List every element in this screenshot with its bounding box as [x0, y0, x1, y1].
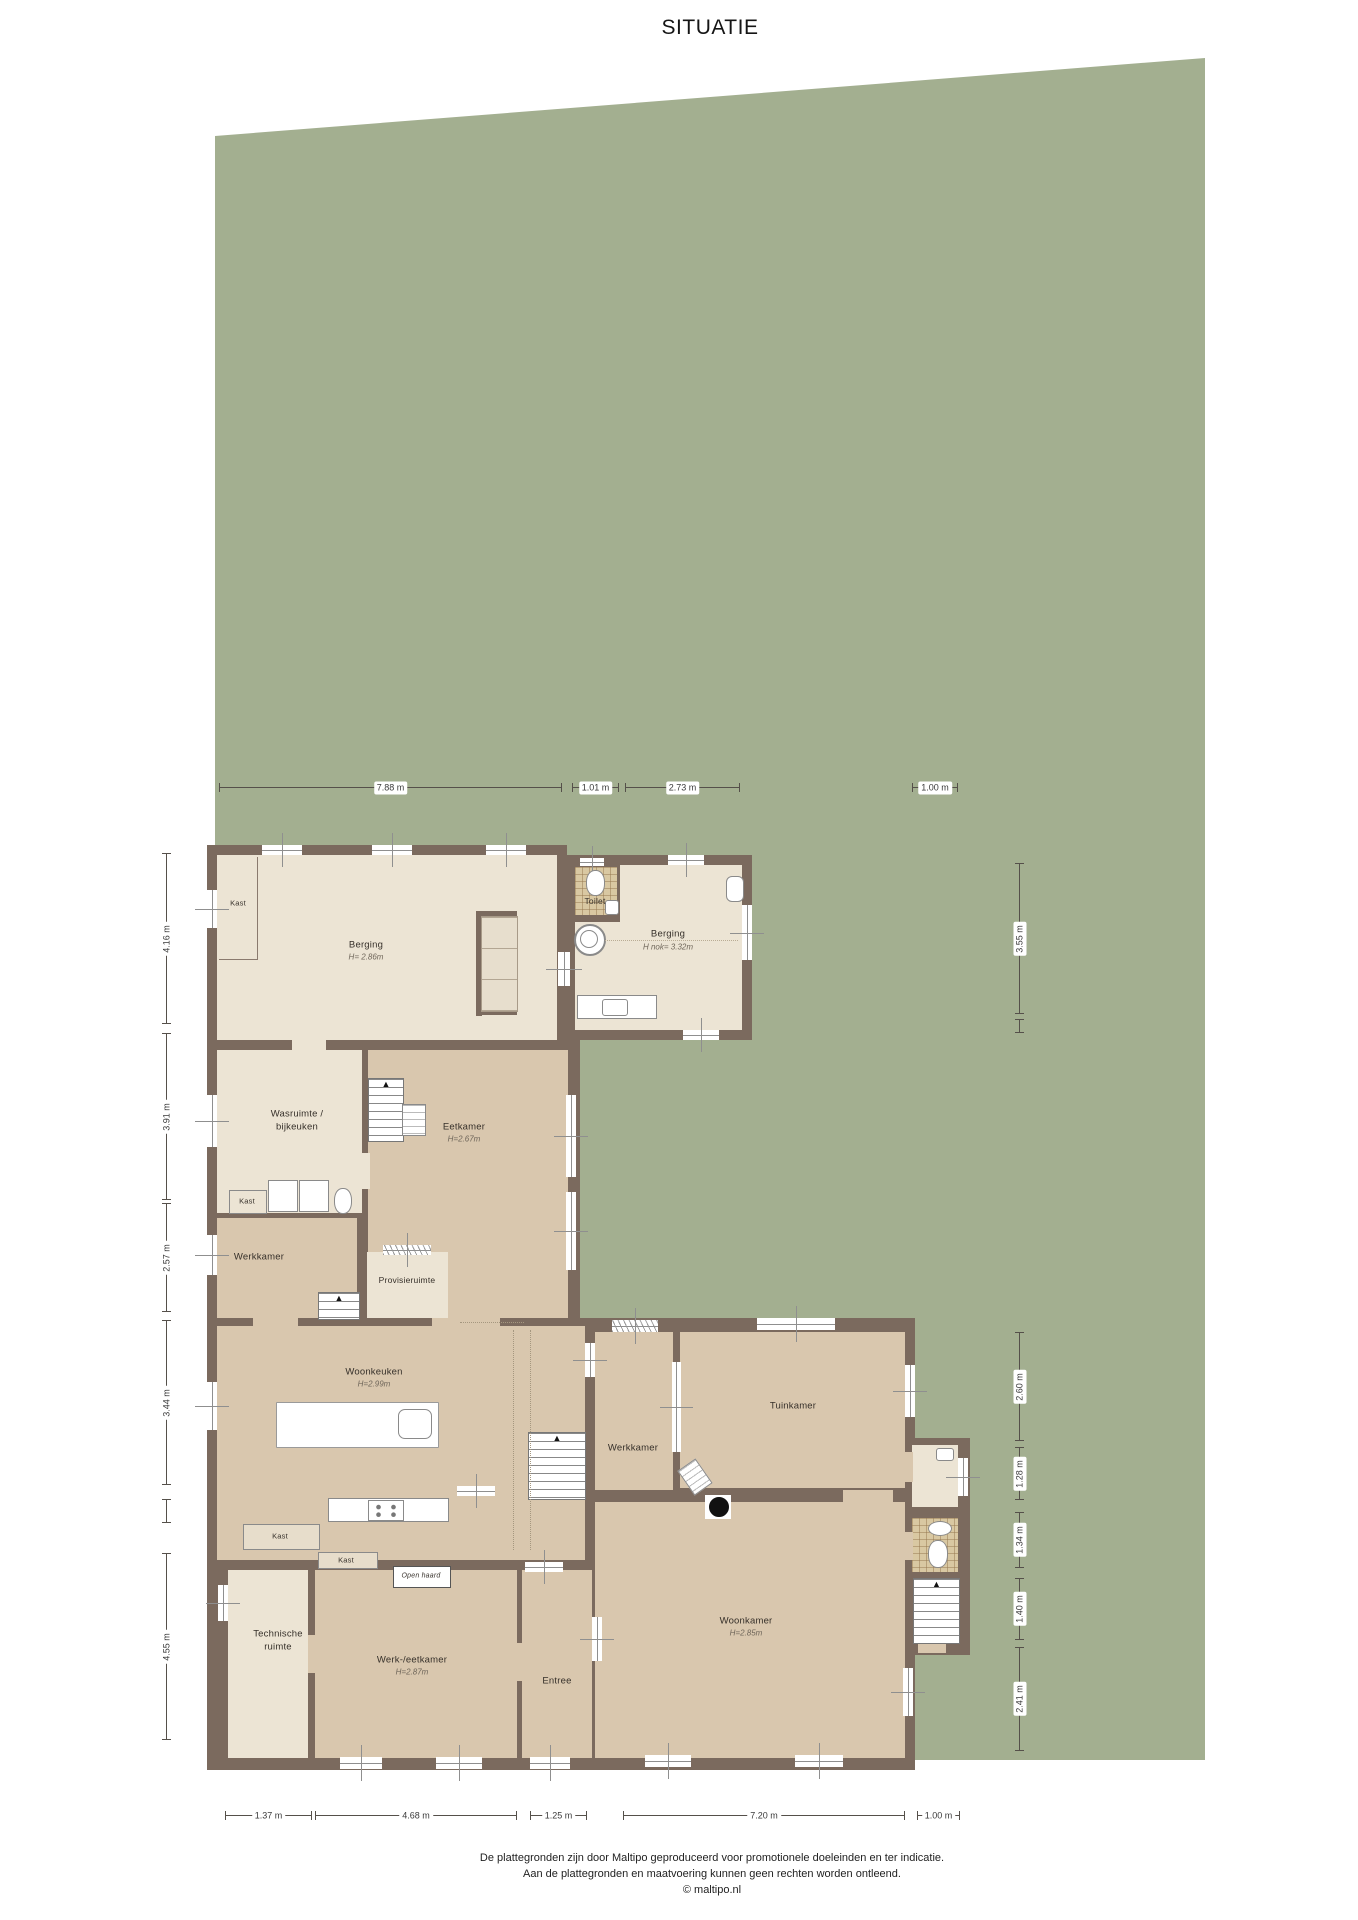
- label-kast: Kast: [230, 899, 246, 908]
- label-werkkamer-center: Werkkamer: [608, 1443, 658, 1454]
- floorplan-page: SITUATIE: [0, 0, 1358, 1920]
- dimension-right: 3.55 m: [1019, 863, 1020, 1014]
- dimension-left: 4.55 m: [166, 1553, 167, 1740]
- door-technische: [308, 1635, 316, 1673]
- label-eetkamer-height: H=2.67m: [448, 1135, 481, 1144]
- dimension-bottom: 1.25 m: [530, 1815, 587, 1816]
- window: [262, 845, 302, 855]
- footer-line-3: © maltipo.nl: [480, 1882, 944, 1898]
- door-wing-top: [905, 1452, 913, 1482]
- dimension-label: 4.68 m: [399, 1809, 433, 1822]
- door-wing-bath: [905, 1532, 913, 1560]
- dimension-label: 1.00 m: [922, 1809, 956, 1822]
- dimension-label: 1.40 m: [1013, 1592, 1026, 1626]
- stairs-arrow-icon: ▲: [932, 1579, 941, 1589]
- label-open-haard: Open haard: [402, 1573, 441, 1580]
- label-woonkeuken-height: H=2.99m: [358, 1380, 391, 1389]
- dimension-label: 2.41 m: [1013, 1682, 1026, 1716]
- window: [958, 1458, 968, 1496]
- door-tuinkamer-woonkamer: [843, 1490, 893, 1504]
- dimension-bottom: 1.00 m: [917, 1815, 960, 1816]
- dimension-right: 1.40 m: [1019, 1578, 1020, 1640]
- label-werkkamer-left: Werkkamer: [234, 1252, 284, 1263]
- dryer-icon: [299, 1180, 329, 1212]
- dimension-top: 1.01 m: [572, 787, 619, 788]
- glass-door-tuinkamer: [612, 1320, 658, 1332]
- toilet-icon-wasruimte: [334, 1188, 352, 1214]
- label-eetkamer: Eetkamer: [443, 1122, 485, 1133]
- dimension-label: 1.28 m: [1013, 1457, 1026, 1491]
- dimension-label: 1.00 m: [918, 781, 952, 794]
- dimension-right: 1.28 m: [1019, 1447, 1020, 1500]
- stairs-hall: ▲: [528, 1432, 586, 1500]
- dimension-bottom: 7.20 m: [623, 1815, 905, 1816]
- island-sink-icon: [398, 1409, 432, 1439]
- dimension-bottom: 4.68 m: [315, 1815, 517, 1816]
- window: [905, 1365, 915, 1417]
- label-kast-wasruimte: Kast: [239, 1197, 255, 1206]
- dimension-label: 3.91 m: [160, 1100, 173, 1134]
- label-berging-right: Berging: [651, 929, 685, 940]
- window: [903, 1668, 913, 1716]
- door-berging-passage: [558, 952, 570, 986]
- dimension-label: 4.55 m: [160, 1630, 173, 1664]
- dimension-top: 7.88 m: [219, 787, 562, 788]
- wall-sink-icon: [726, 876, 744, 902]
- label-werk-eetkamer: Werk-/eetkamer: [377, 1655, 447, 1666]
- door-entree-woonkamer: [592, 1617, 602, 1661]
- window-interior: [672, 1362, 681, 1452]
- label-woonkeuken: Woonkeuken: [345, 1367, 402, 1378]
- door-interior: [457, 1486, 495, 1496]
- window: [207, 1095, 217, 1147]
- dimension-top: 2.73 m: [625, 787, 740, 788]
- label-berging-left-height: H= 2.86m: [349, 953, 384, 962]
- window: [683, 1030, 719, 1040]
- dimension-label: 3.55 m: [1013, 922, 1026, 956]
- cv-unit-icon: [402, 1104, 426, 1136]
- dimension-left: 2.57 m: [166, 1203, 167, 1312]
- dotted-line-berging: [605, 940, 738, 941]
- door-keuken-b: [432, 1318, 470, 1328]
- label-entree: Entree: [542, 1676, 571, 1687]
- footer-line-2: Aan de plattegronden en maatvoering kunn…: [480, 1866, 944, 1882]
- window: [372, 845, 412, 855]
- window-toilet: [580, 858, 604, 866]
- door-wasruimte-eetkamer: [362, 1153, 370, 1189]
- dotted-line: [513, 1330, 514, 1550]
- label-berging-right-height: H nok= 3.32m: [643, 943, 693, 952]
- window: [340, 1757, 382, 1769]
- dimension-label: 2.60 m: [1013, 1370, 1026, 1404]
- room-werkkamer-center: [595, 1332, 673, 1490]
- dimension-right: 2.41 m: [1019, 1647, 1020, 1751]
- label-tuinkamer: Tuinkamer: [770, 1401, 816, 1412]
- door-werkkamer-center: [585, 1343, 595, 1377]
- wing-sink-icon: [936, 1448, 954, 1461]
- window: [668, 855, 704, 865]
- window: [742, 905, 752, 960]
- label-wasruimte: Wasruimte /: [271, 1109, 324, 1120]
- door-entree-werk-eetkamer: [517, 1643, 525, 1681]
- window: [795, 1755, 843, 1767]
- window: [207, 890, 217, 928]
- front-door: [530, 1757, 570, 1769]
- washing-machine-drum-icon: [580, 930, 598, 948]
- dimension-left: [166, 1499, 167, 1523]
- dimension-label: 1.01 m: [579, 781, 613, 794]
- room-entree: [522, 1570, 592, 1758]
- footer-line-1: De plattegronden zijn door Maltipo gepro…: [480, 1850, 944, 1866]
- dotted-line: [530, 1330, 531, 1550]
- dimension-label: 7.88 m: [374, 781, 408, 794]
- label-wasruimte-2: bijkeuken: [276, 1122, 318, 1133]
- stairs-arrow-icon: ▲: [335, 1293, 344, 1303]
- window: [757, 1318, 835, 1330]
- label-technische: Technische: [253, 1629, 303, 1640]
- stairs-arrow-icon: ▲: [382, 1079, 391, 1089]
- dotted-line: [460, 1322, 524, 1323]
- door-hall-entree: [525, 1562, 563, 1572]
- dimension-label: 4.16 m: [160, 922, 173, 956]
- dimension-label: 2.57 m: [160, 1241, 173, 1275]
- sink-berging-icon: [602, 999, 628, 1016]
- dimension-right: [1019, 1019, 1020, 1033]
- window: [218, 1585, 228, 1621]
- stairs-wing: ▲: [913, 1578, 960, 1644]
- glass-door-provisie: [383, 1245, 431, 1255]
- window: [207, 1235, 217, 1275]
- label-kast-kitchen: Kast: [272, 1532, 288, 1541]
- label-kast-kitchen-b: Kast: [338, 1556, 354, 1565]
- bath-toilet-icon: [928, 1540, 948, 1568]
- dimension-label: 1.34 m: [1013, 1523, 1026, 1557]
- wood-stove-icon: [709, 1497, 729, 1517]
- stairs-eetkamer: ▲: [368, 1078, 404, 1142]
- window: [207, 1382, 217, 1430]
- window: [566, 1095, 576, 1177]
- window: [566, 1192, 576, 1270]
- label-werk-eetkamer-height: H=2.87m: [396, 1668, 429, 1677]
- door-keuken-a: [253, 1318, 298, 1328]
- window: [645, 1755, 691, 1767]
- room-technische-ruimte: [228, 1570, 308, 1758]
- dimension-right: 1.34 m: [1019, 1512, 1020, 1568]
- label-woonkamer-height: H=2.85m: [730, 1629, 763, 1638]
- page-title: SITUATIE: [662, 16, 759, 40]
- dimension-right: 2.60 m: [1019, 1332, 1020, 1441]
- window: [436, 1757, 482, 1769]
- dimension-label: 3.44 m: [160, 1386, 173, 1420]
- dimension-label: 1.25 m: [542, 1809, 576, 1822]
- label-technische-2: ruimte: [264, 1642, 292, 1653]
- shelving-unit: [481, 916, 518, 1012]
- dimension-top: 1.00 m: [912, 787, 958, 788]
- dimension-left: 4.16 m: [166, 853, 167, 1024]
- label-provisieruimte: Provisieruimte: [379, 1275, 436, 1285]
- dimension-bottom: 1.37 m: [225, 1815, 312, 1816]
- dimension-left: 3.44 m: [166, 1320, 167, 1485]
- label-toilet: Toilet: [584, 896, 605, 906]
- toilet-bowl-icon: [586, 870, 605, 896]
- footer-disclaimer: De plattegronden zijn door Maltipo gepro…: [480, 1850, 944, 1898]
- dimension-left: 3.91 m: [166, 1033, 167, 1200]
- window: [486, 845, 526, 855]
- door-wing-stairs: [918, 1644, 946, 1653]
- dimension-label: 1.37 m: [252, 1809, 286, 1822]
- label-woonkamer: Woonkamer: [720, 1616, 773, 1627]
- dimension-label: 2.73 m: [666, 781, 700, 794]
- toilet-sink-icon: [605, 900, 619, 915]
- door-berging-wasruimte: [292, 1040, 326, 1052]
- stairs-cellar: ▲: [318, 1292, 360, 1320]
- label-berging-left: Berging: [349, 940, 383, 951]
- bath-sink-icon: [928, 1521, 952, 1536]
- cooktop-icon: [368, 1500, 404, 1521]
- stairs-arrow-icon: ▲: [553, 1433, 562, 1443]
- washer-icon: [268, 1180, 298, 1212]
- dimension-label: 7.20 m: [747, 1809, 781, 1822]
